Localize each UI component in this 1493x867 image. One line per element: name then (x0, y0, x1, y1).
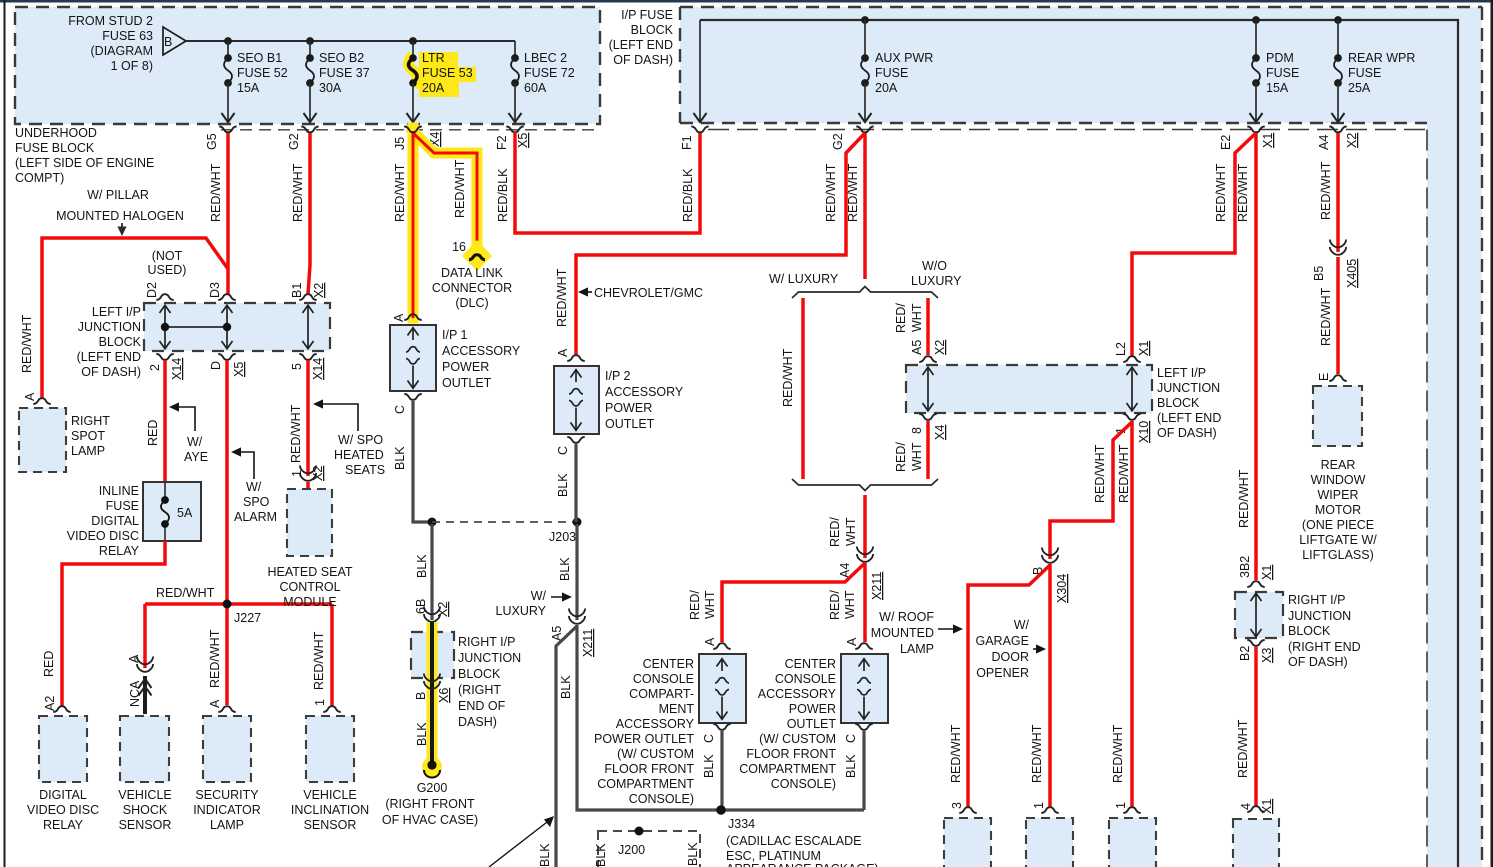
svg-text:OF HVAC CASE): OF HVAC CASE) (382, 813, 478, 827)
svg-text:WIPER: WIPER (1318, 488, 1359, 502)
svg-text:(NOT: (NOT (152, 249, 183, 263)
svg-text:JUNCTION: JUNCTION (458, 651, 521, 665)
svg-text:RED: RED (146, 420, 160, 446)
svg-text:X304: X304 (1055, 574, 1069, 603)
svg-text:LIFTGATE W/: LIFTGATE W/ (1299, 533, 1377, 547)
svg-text:8: 8 (910, 427, 924, 434)
svg-text:LTR: LTR (422, 51, 445, 65)
svg-text:RIGHT I/P: RIGHT I/P (1288, 593, 1345, 607)
svg-text:HEATED SEAT: HEATED SEAT (268, 565, 353, 579)
svg-text:RED/WHT: RED/WHT (824, 163, 838, 222)
svg-text:W/: W/ (531, 589, 547, 603)
svg-text:16: 16 (452, 240, 466, 254)
svg-text:LUXURY: LUXURY (496, 604, 547, 618)
svg-text:BLK: BLK (415, 722, 429, 746)
svg-text:RED/WHT: RED/WHT (453, 159, 467, 218)
svg-text:INCLINATION: INCLINATION (291, 803, 369, 817)
svg-text:MODULE: MODULE (283, 595, 336, 609)
svg-text:25A: 25A (1348, 81, 1371, 95)
svg-text:X3: X3 (1260, 648, 1274, 663)
svg-text:WINDOW: WINDOW (1311, 473, 1366, 487)
svg-text:RED/WHT: RED/WHT (1236, 163, 1250, 222)
svg-text:1: 1 (290, 470, 304, 477)
svg-text:RED/WHT: RED/WHT (555, 268, 569, 327)
svg-text:W/ LUXURY: W/ LUXURY (769, 272, 839, 286)
svg-text:I/P FUSE: I/P FUSE (621, 8, 673, 22)
svg-text:BLK: BLK (415, 554, 429, 578)
svg-text:BLK: BLK (558, 557, 572, 581)
svg-text:BLK: BLK (594, 843, 608, 867)
svg-text:AYE: AYE (184, 450, 208, 464)
svg-text:BLK: BLK (844, 754, 858, 778)
svg-text:B2: B2 (1238, 646, 1252, 661)
svg-text:D: D (209, 361, 223, 370)
svg-text:CONNECTOR: CONNECTOR (432, 281, 512, 295)
svg-text:I/P 1: I/P 1 (442, 328, 468, 342)
svg-text:OPENER: OPENER (976, 666, 1029, 680)
svg-text:J334: J334 (728, 817, 755, 831)
svg-text:DASH): DASH) (458, 715, 497, 729)
svg-text:OF DASH): OF DASH) (613, 53, 673, 67)
svg-text:G2: G2 (831, 133, 845, 150)
svg-text:(RIGHT END: (RIGHT END (1288, 640, 1361, 654)
svg-text:LBEC 2: LBEC 2 (524, 51, 567, 65)
svg-text:FUSE BLOCK: FUSE BLOCK (15, 141, 95, 155)
svg-text:OUTLET: OUTLET (442, 376, 492, 390)
svg-text:X6: X6 (437, 688, 451, 703)
svg-text:G5: G5 (205, 133, 219, 150)
svg-text:OF DASH): OF DASH) (81, 365, 141, 379)
svg-text:LAMP: LAMP (71, 444, 105, 458)
svg-text:WHT: WHT (910, 303, 924, 332)
svg-text:FROM STUD 2: FROM STUD 2 (68, 14, 153, 28)
svg-text:RED/WHT: RED/WHT (312, 631, 326, 690)
svg-text:FLOOR FRONT: FLOOR FRONT (746, 747, 836, 761)
svg-text:D3: D3 (208, 282, 222, 298)
svg-text:X2: X2 (312, 283, 326, 298)
svg-text:RELAY: RELAY (99, 544, 140, 558)
svg-text:J203: J203 (549, 530, 576, 544)
svg-text:RED/WHT: RED/WHT (291, 163, 305, 222)
svg-text:RED/WHT: RED/WHT (1093, 444, 1107, 503)
svg-text:SECURITY: SECURITY (195, 788, 259, 802)
svg-text:BLK: BLK (538, 843, 552, 867)
svg-text:RED/: RED/ (894, 303, 908, 333)
svg-text:W/ PILLAR: W/ PILLAR (87, 188, 149, 202)
svg-text:A: A (127, 654, 141, 663)
svg-text:3: 3 (950, 802, 964, 809)
svg-text:I/P 2: I/P 2 (605, 369, 631, 383)
svg-text:X2: X2 (436, 602, 450, 617)
svg-text:B: B (164, 35, 172, 49)
svg-text:(DIAGRAM: (DIAGRAM (91, 44, 154, 58)
svg-text:LAMP: LAMP (210, 818, 244, 832)
svg-text:ACCESSORY: ACCESSORY (605, 385, 684, 399)
svg-text:C: C (556, 446, 570, 455)
svg-text:CONTROL: CONTROL (279, 580, 340, 594)
svg-text:BLOCK: BLOCK (1288, 624, 1331, 638)
svg-text:X2: X2 (311, 466, 325, 481)
svg-text:UNDERHOOD: UNDERHOOD (15, 126, 97, 140)
svg-text:BLOCK: BLOCK (458, 667, 501, 681)
svg-text:APPEARANCE PACKAGE): APPEARANCE PACKAGE) (726, 862, 879, 867)
svg-text:FLOOR FRONT: FLOOR FRONT (604, 762, 694, 776)
svg-text:RED/WHT: RED/WHT (156, 586, 215, 600)
svg-text:RED/WHT: RED/WHT (846, 163, 860, 222)
svg-text:SPOT: SPOT (71, 429, 105, 443)
svg-text:G200: G200 (417, 781, 448, 795)
svg-text:WHT: WHT (910, 442, 924, 471)
svg-text:INDICATOR: INDICATOR (193, 803, 261, 817)
svg-text:A: A (703, 637, 717, 646)
svg-text:RED/WHT: RED/WHT (1237, 469, 1251, 528)
svg-text:BLOCK: BLOCK (99, 335, 142, 349)
svg-text:SEO B1: SEO B1 (237, 51, 282, 65)
svg-text:RED/WHT: RED/WHT (1236, 719, 1250, 778)
svg-text:E2: E2 (1219, 135, 1233, 150)
svg-text:W/ SPO: W/ SPO (338, 433, 383, 447)
svg-text:JUNCTION: JUNCTION (1288, 609, 1351, 623)
svg-text:FUSE: FUSE (1348, 66, 1381, 80)
svg-text:X1: X1 (1260, 799, 1274, 814)
svg-text:RED/WHT: RED/WHT (208, 629, 222, 688)
svg-text:RED/WHT: RED/WHT (1214, 163, 1228, 222)
svg-text:BLOCK: BLOCK (631, 23, 674, 37)
svg-text:WHT: WHT (703, 590, 717, 619)
svg-text:B1: B1 (290, 283, 304, 298)
svg-text:RED/WHT: RED/WHT (781, 348, 795, 407)
svg-text:1 OF 8): 1 OF 8) (111, 59, 153, 73)
svg-text:RED/BLK: RED/BLK (681, 168, 695, 222)
svg-text:LIFTGLASS): LIFTGLASS) (1302, 548, 1374, 562)
svg-text:L2: L2 (1114, 342, 1128, 356)
svg-text:CENTER: CENTER (785, 657, 836, 671)
svg-text:MOUNTED HALOGEN: MOUNTED HALOGEN (56, 209, 184, 223)
svg-text:SEO B2: SEO B2 (319, 51, 364, 65)
svg-text:X211: X211 (870, 572, 884, 600)
svg-text:W/: W/ (187, 435, 203, 449)
svg-text:BLK: BLK (559, 675, 573, 699)
svg-text:D2: D2 (145, 282, 159, 298)
svg-text:ESC, PLATINUM: ESC, PLATINUM (726, 849, 821, 863)
svg-text:(DLC): (DLC) (455, 296, 488, 310)
svg-text:30A: 30A (319, 81, 342, 95)
svg-text:CENTER: CENTER (643, 657, 694, 671)
svg-text:(CADILLAC ESCALADE: (CADILLAC ESCALADE (726, 834, 861, 848)
svg-text:END OF: END OF (458, 699, 506, 713)
svg-text:FUSE 72: FUSE 72 (524, 66, 575, 80)
svg-text:REAR WPR: REAR WPR (1348, 51, 1415, 65)
svg-text:WHT: WHT (843, 590, 857, 619)
svg-text:DIGITAL: DIGITAL (91, 514, 139, 528)
svg-text:CONSOLE: CONSOLE (633, 672, 694, 686)
svg-text:J200: J200 (618, 843, 645, 857)
svg-text:A: A (845, 637, 859, 646)
svg-text:BLK: BLK (686, 842, 700, 866)
svg-text:RIGHT: RIGHT (71, 414, 110, 428)
svg-text:C: C (702, 734, 716, 743)
svg-text:AUX PWR: AUX PWR (875, 51, 933, 65)
svg-text:5: 5 (290, 363, 304, 370)
svg-text:RED/WHT: RED/WHT (209, 163, 223, 222)
svg-text:LEFT I/P: LEFT I/P (1157, 366, 1206, 380)
svg-text:RED/BLK: RED/BLK (496, 168, 510, 222)
svg-text:RED/WHT: RED/WHT (1117, 444, 1131, 503)
svg-text:RIGHT I/P: RIGHT I/P (458, 635, 515, 649)
svg-text:WHT: WHT (844, 517, 858, 546)
svg-text:RED/WHT: RED/WHT (1319, 161, 1333, 220)
svg-text:PDM: PDM (1266, 51, 1294, 65)
svg-text:RED/WHT: RED/WHT (1319, 287, 1333, 346)
svg-text:LUXURY: LUXURY (911, 274, 962, 288)
svg-text:RED/WHT: RED/WHT (1111, 724, 1125, 783)
svg-text:INLINE: INLINE (99, 484, 139, 498)
svg-text:C: C (393, 405, 407, 414)
svg-text:X2: X2 (1345, 133, 1359, 148)
svg-text:DATA LINK: DATA LINK (441, 266, 504, 280)
svg-text:BLK: BLK (556, 473, 570, 497)
svg-text:RED/: RED/ (894, 442, 908, 472)
svg-text:OUTLET: OUTLET (787, 717, 837, 731)
svg-text:(ONE PIECE: (ONE PIECE (1302, 518, 1374, 532)
svg-text:A5: A5 (910, 340, 924, 355)
svg-text:A: A (208, 699, 222, 708)
svg-text:X4: X4 (933, 425, 947, 440)
svg-text:COMPART-: COMPART- (629, 687, 694, 701)
svg-text:(LEFT SIDE OF ENGINE: (LEFT SIDE OF ENGINE (15, 156, 154, 170)
svg-text:RED/WHT: RED/WHT (289, 404, 303, 463)
svg-text:ACCESSORY: ACCESSORY (758, 687, 837, 701)
svg-text:(LEFT END: (LEFT END (609, 38, 673, 52)
svg-text:B: B (414, 692, 428, 700)
svg-text:SENSOR: SENSOR (304, 818, 357, 832)
svg-text:FUSE: FUSE (106, 499, 139, 513)
svg-text:20A: 20A (422, 81, 445, 95)
svg-text:(W/ CUSTOM: (W/ CUSTOM (759, 732, 836, 746)
svg-text:RED/: RED/ (688, 590, 702, 620)
svg-text:CHEVROLET/GMC: CHEVROLET/GMC (594, 286, 703, 300)
svg-text:USED): USED) (148, 263, 187, 277)
svg-text:6B: 6B (414, 599, 428, 614)
svg-text:COMPARTMENT: COMPARTMENT (739, 762, 836, 776)
svg-text:RED/WHT: RED/WHT (949, 724, 963, 783)
svg-text:X1: X1 (1260, 565, 1274, 580)
svg-text:MENT: MENT (659, 702, 695, 716)
svg-text:LEFT I/P: LEFT I/P (92, 305, 141, 319)
svg-text:A2: A2 (43, 696, 57, 711)
svg-text:GARAGE: GARAGE (976, 634, 1030, 648)
svg-text:X405: X405 (1345, 259, 1359, 288)
svg-text:E: E (1317, 373, 1331, 381)
svg-text:POWER: POWER (789, 702, 836, 716)
svg-text:W/: W/ (1014, 618, 1030, 632)
svg-text:A4: A4 (1317, 135, 1331, 150)
svg-text:MOTOR: MOTOR (1315, 503, 1361, 517)
svg-text:DIGITAL: DIGITAL (39, 788, 87, 802)
svg-text:ACCESSORY: ACCESSORY (616, 717, 695, 731)
svg-text:NCA: NCA (128, 680, 142, 707)
svg-text:JUNCTION: JUNCTION (78, 320, 141, 334)
svg-text:B5: B5 (1312, 266, 1326, 281)
svg-text:HEATED: HEATED (334, 448, 384, 462)
svg-text:J5: J5 (393, 137, 407, 150)
svg-text:(W/ CUSTOM: (W/ CUSTOM (617, 747, 694, 761)
svg-text:20A: 20A (875, 81, 898, 95)
svg-text:RED/WHT: RED/WHT (20, 314, 34, 373)
svg-text:W/: W/ (246, 480, 262, 494)
svg-text:OF DASH): OF DASH) (1288, 655, 1348, 669)
svg-text:X1: X1 (1137, 341, 1151, 356)
svg-text:SENSOR: SENSOR (119, 818, 172, 832)
svg-text:F1: F1 (680, 135, 694, 150)
svg-text:A: A (392, 313, 406, 322)
svg-text:FUSE: FUSE (1266, 66, 1299, 80)
svg-text:A: A (556, 348, 570, 357)
svg-text:FUSE 52: FUSE 52 (237, 66, 288, 80)
svg-text:CONSOLE): CONSOLE) (771, 777, 836, 791)
svg-text:BLK: BLK (393, 446, 407, 470)
svg-text:A: A (23, 392, 37, 401)
svg-text:COMPT): COMPT) (15, 171, 64, 185)
svg-text:(RIGHT FRONT: (RIGHT FRONT (385, 797, 475, 811)
svg-text:FUSE 63: FUSE 63 (102, 29, 153, 43)
svg-text:SHOCK: SHOCK (123, 803, 168, 817)
svg-text:G2: G2 (287, 133, 301, 150)
svg-text:VIDEO DISC: VIDEO DISC (27, 803, 99, 817)
svg-text:(LEFT END: (LEFT END (77, 350, 141, 364)
svg-text:RED/WHT: RED/WHT (1030, 724, 1044, 783)
svg-text:CONSOLE: CONSOLE (775, 672, 836, 686)
svg-text:W/O: W/O (922, 259, 947, 273)
svg-text:BLOCK: BLOCK (1157, 396, 1200, 410)
svg-text:5A: 5A (177, 506, 193, 520)
svg-text:POWER: POWER (442, 360, 489, 374)
svg-text:ACCESSORY: ACCESSORY (442, 344, 521, 358)
svg-text:3B2: 3B2 (1238, 556, 1252, 578)
svg-text:RED/WHT: RED/WHT (393, 163, 407, 222)
svg-text:DOOR: DOOR (992, 650, 1030, 664)
svg-text:OUTLET: OUTLET (605, 417, 655, 431)
svg-text:X14: X14 (170, 358, 184, 380)
svg-text:2: 2 (148, 364, 162, 371)
svg-text:FUSE 37: FUSE 37 (319, 66, 370, 80)
svg-text:X14: X14 (311, 358, 325, 380)
svg-text:VEHICLE: VEHICLE (118, 788, 172, 802)
svg-text:1: 1 (1032, 802, 1046, 809)
svg-text:RED/: RED/ (828, 590, 842, 620)
svg-text:X5: X5 (232, 362, 246, 377)
svg-text:OF DASH): OF DASH) (1157, 426, 1217, 440)
svg-text:POWER OUTLET: POWER OUTLET (594, 732, 694, 746)
svg-text:4: 4 (1239, 803, 1253, 810)
svg-text:MOUNTED: MOUNTED (871, 626, 934, 640)
svg-text:F2: F2 (495, 135, 509, 150)
svg-text:X2: X2 (933, 340, 947, 355)
svg-text:RELAY: RELAY (43, 818, 84, 832)
svg-text:1: 1 (1114, 802, 1128, 809)
svg-text:J227: J227 (234, 611, 261, 625)
svg-text:X211: X211 (581, 629, 595, 657)
svg-text:LAMP: LAMP (900, 642, 934, 656)
svg-text:SEATS: SEATS (345, 463, 385, 477)
svg-text:1: 1 (313, 699, 327, 706)
svg-text:FUSE: FUSE (875, 66, 908, 80)
svg-text:(RIGHT: (RIGHT (458, 683, 501, 697)
svg-text:CONSOLE): CONSOLE) (629, 792, 694, 806)
svg-text:ALARM: ALARM (234, 510, 277, 524)
svg-text:BLK: BLK (702, 754, 716, 778)
svg-text:REAR: REAR (1321, 458, 1356, 472)
svg-text:VEHICLE: VEHICLE (303, 788, 357, 802)
svg-text:X1: X1 (1261, 133, 1275, 148)
svg-text:15A: 15A (237, 81, 260, 95)
svg-text:X10: X10 (1137, 421, 1151, 443)
svg-text:VIDEO DISC: VIDEO DISC (67, 529, 139, 543)
svg-text:15A: 15A (1266, 81, 1289, 95)
svg-text:RED/: RED/ (828, 517, 842, 547)
svg-text:POWER: POWER (605, 401, 652, 415)
svg-text:W/ ROOF: W/ ROOF (879, 610, 934, 624)
svg-text:C: C (844, 734, 858, 743)
svg-text:FUSE 53: FUSE 53 (422, 66, 473, 80)
svg-text:(LEFT END: (LEFT END (1157, 411, 1221, 425)
svg-text:JUNCTION: JUNCTION (1157, 381, 1220, 395)
svg-text:SPO: SPO (243, 495, 270, 509)
svg-text:RED: RED (42, 651, 56, 677)
svg-text:COMPARTMENT: COMPARTMENT (597, 777, 694, 791)
svg-text:X5: X5 (516, 133, 530, 148)
svg-text:60A: 60A (524, 81, 547, 95)
